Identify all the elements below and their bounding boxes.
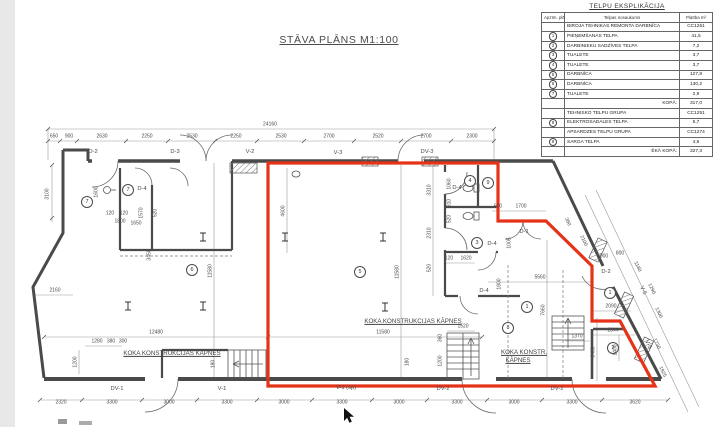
dim-label: 120 [120, 212, 128, 217]
room-number-badge: 3 [549, 51, 558, 60]
room-number: 7 [122, 184, 134, 196]
dim-label: 2344 [607, 329, 618, 334]
dim-label: 3100 [46, 188, 51, 199]
dimension-lines [33, 129, 699, 412]
dim-label: 12480 [149, 331, 163, 336]
table-row: APSARDZES TELPU GRUPACC1274 [542, 128, 713, 138]
door-label-dv2: DV-2 [551, 387, 564, 393]
dim-label: 1370 [571, 335, 582, 340]
dim-label: 3300 [451, 401, 462, 406]
dim-label: 2320 [55, 401, 66, 406]
room-number: 3 [471, 237, 483, 249]
dim-label: 1700 [515, 205, 526, 210]
dim-label: 7660 [542, 304, 547, 315]
dim-label: 11580 [209, 264, 214, 278]
table-total-row: KOPĀ:317,0 [542, 99, 713, 109]
dim-label: 180 [406, 358, 411, 366]
dim-label: 3300 [336, 401, 347, 406]
door-label-d2: D-2 [601, 270, 610, 276]
dim-label: 900 [65, 135, 73, 140]
dim-label: 2630 [96, 135, 107, 140]
door-label-d4: D-4 [479, 289, 488, 295]
dim-label: 2090 [605, 305, 616, 310]
stairs-note: KĀPNES [505, 358, 530, 364]
table-row: 2DARBINIEKU SADZĪVES TELPA7,2 [542, 41, 713, 51]
dim-label: 120 [106, 212, 114, 217]
dim-label: 1600 [95, 186, 100, 197]
cutoff-stamp-fragment [79, 421, 92, 425]
dim-label: 900 [600, 255, 608, 260]
window-label-v1sp: V-1 (sp) [336, 386, 356, 392]
table-row: 8ELEKTROSADALES TELPA5,7 [542, 118, 713, 128]
table-row: TEHNISKO TELPU GRUPACC1251 [542, 108, 713, 118]
dim-label: 3620 [629, 401, 640, 406]
table-row: BIROJA TEHNIKAS REMONTA DARBNĪCACC1251 [542, 22, 713, 32]
door-label-dv3: DV-3 [421, 150, 434, 156]
dim-label: 3300 [221, 401, 232, 406]
room-number-badge: 6 [549, 80, 558, 89]
dim-label: 1400 [614, 344, 619, 355]
dim-label: 4600 [282, 205, 287, 216]
dim-label: 2520 [372, 135, 383, 140]
wc-fixtures [104, 171, 480, 220]
table-title: TELPU EKSPLIKĀCIJA [541, 3, 713, 10]
dim-label: 810 [448, 199, 453, 207]
door-label-d3: D-3 [170, 150, 179, 156]
dim-label: 800 [616, 252, 624, 257]
dim-label: 1620 [460, 257, 471, 262]
dim-label: 2530 [275, 135, 286, 140]
dim-label: 1520 [457, 325, 468, 330]
room-number-badge: 8 [549, 119, 558, 128]
dim-label: 3000 [393, 401, 404, 406]
dim-label: 2250 [230, 135, 241, 140]
dim-label: 1200 [439, 355, 444, 366]
dim-label: 120 [445, 257, 453, 262]
table-row: 9SARGA TELPA4,6 [542, 137, 713, 147]
room-number: 8 [502, 322, 514, 334]
dim-label: 1570 [140, 207, 145, 218]
dim-label: 3000 [278, 401, 289, 406]
dim-label: 650 [50, 135, 58, 140]
dim-label: 5560 [534, 276, 545, 281]
dim-label: 520 [448, 215, 453, 223]
col-header-area: Platība m² [680, 13, 713, 23]
table-row: 1PIEŅEMŠANAS TELPA41,5 [542, 32, 713, 42]
table-row: 4TUALETE3,7 [542, 60, 713, 70]
door-label-d4: D-4 [137, 187, 146, 193]
door-label-dv2: DV-2 [437, 387, 450, 393]
page-title: STĀVA PLĀNS M1:100 [279, 34, 398, 46]
dim-label: 11580 [376, 331, 390, 336]
dim-label: 300 [119, 340, 127, 345]
room-number: 4 [464, 175, 476, 187]
dim-label: 3310 [428, 184, 433, 195]
door-label-d4: D-4 [487, 242, 496, 248]
cad-drawing-page: STĀVA PLĀNS M1:100 24160 650 900 2630 22… [0, 0, 715, 427]
window-label-v3: V-3 [334, 151, 343, 157]
dim-label: 3000 [163, 401, 174, 406]
dim-label: 3000 [508, 401, 519, 406]
room-number: 5 [354, 266, 366, 278]
room-number-badge: 9 [549, 138, 558, 147]
dim-label: 1800 [114, 220, 125, 225]
room-number-badge: 7 [549, 90, 558, 99]
dim-label: 2700 [323, 135, 334, 140]
stairs-note: KOKA KONSTR. [501, 350, 547, 356]
dim-label-overall: 24160 [263, 123, 277, 128]
room-number: 1 [604, 287, 616, 299]
door-label-d1: D-1 [519, 230, 528, 236]
dim-label: 380 [107, 340, 115, 345]
dim-label: 2310 [428, 227, 433, 238]
stairs-note: KOKA KONSTRUKCIJAS KĀPNES [364, 319, 461, 325]
dim-label: 2530 [186, 135, 197, 140]
cutoff-stamp-fragment [58, 419, 67, 424]
room-number: 1 [521, 301, 533, 313]
table-row: 5DARBNĪCA127,8 [542, 70, 713, 80]
room-number: 6 [186, 264, 198, 276]
dim-label: 2300 [466, 135, 477, 140]
dim-label: 1060 [448, 178, 453, 189]
col-header-name: Telpas nosaukums [565, 13, 680, 23]
dim-label: 180 [212, 360, 217, 368]
dim-label: 3400 [592, 346, 597, 357]
window-hatches [230, 157, 654, 363]
dim-label: 2700 [420, 135, 431, 140]
dim-label: 600 [494, 205, 502, 210]
room-number: 9 [482, 177, 494, 189]
dim-label: 520 [428, 264, 433, 272]
dim-label: 1800 [498, 278, 503, 289]
table-total-row: ĒKĀ KOPĀ:327,3 [542, 147, 713, 157]
dashed-lines [120, 256, 563, 379]
stairs [228, 316, 584, 379]
dim-label: 360 [439, 334, 444, 342]
dim-label: 1200 [74, 356, 79, 367]
window-label-v1: V-1 [218, 387, 227, 393]
room-number-badge: 2 [549, 42, 558, 51]
dimension-ticks [38, 127, 670, 402]
table-row: 3TUALETE3,7 [542, 51, 713, 61]
col-header-symbol: Apzīm. plānā [542, 13, 565, 23]
table-row: 6DARBNĪCA130,2 [542, 80, 713, 90]
dim-label: 3300 [566, 401, 577, 406]
dim-label: 1650 [130, 222, 141, 227]
table-row: 7TUALETE2,9 [542, 89, 713, 99]
dim-label: 11580 [396, 265, 401, 279]
dim-label: 520 [154, 209, 159, 217]
room-number: 7 [81, 196, 93, 208]
dim-label: 1005 [508, 237, 513, 248]
dim-label: 2250 [141, 135, 152, 140]
door-label-d4: D-4 [452, 186, 461, 192]
mouse-cursor [344, 408, 354, 423]
door-label-dv1: DV-1 [111, 387, 124, 393]
door-label-d2: D-2 [88, 150, 97, 156]
dim-label: 1280 [91, 340, 102, 345]
room-explication-table: TELPU EKSPLIKĀCIJA Apzīm. plānā Telpas n… [541, 3, 713, 157]
room-number-badge: 1 [549, 32, 558, 41]
stairs-note: KOKA KONSTRUKCIJAS KĀPNES [123, 351, 220, 357]
dim-label: 2160 [49, 289, 60, 294]
room-number-badge: 4 [549, 61, 558, 70]
window-label-v2: V-2 [246, 150, 255, 156]
dim-label: 3300 [106, 401, 117, 406]
dim-label: 3450 [148, 249, 153, 260]
table-header-row: Apzīm. plānā Telpas nosaukums Platība m² [542, 13, 713, 23]
room-number-badge: 5 [549, 71, 558, 80]
column-symbols [125, 233, 388, 311]
